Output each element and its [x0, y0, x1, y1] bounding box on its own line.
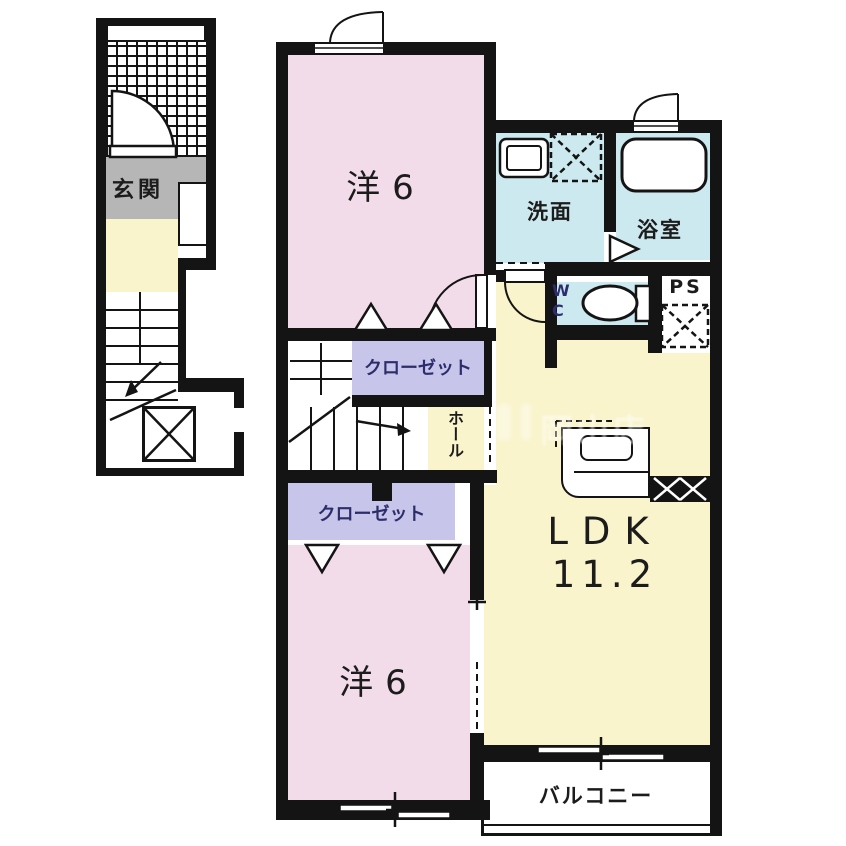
ldk-label-block: LDK 11.2 [515, 510, 695, 596]
wall-segment [96, 468, 244, 476]
wall-segment [372, 483, 392, 501]
window-top [313, 42, 385, 55]
watermark-text: 岡山店 [540, 404, 648, 452]
window-bathroom [632, 120, 680, 133]
wc-floor [557, 282, 648, 325]
wall-segment [178, 258, 186, 392]
void-x-box [142, 406, 196, 462]
wall-segment [545, 262, 722, 276]
wall-segment [648, 276, 662, 353]
genkan-label: 玄関 [112, 172, 164, 204]
bedroom-top-label: 洋6 [288, 160, 484, 209]
wc-label: W C [552, 281, 570, 321]
wall-segment [496, 270, 505, 282]
wall-segment [545, 325, 662, 340]
watermark-smudge [521, 404, 531, 440]
wall-segment [178, 378, 244, 392]
interior-stairs-arrowhead [397, 423, 411, 436]
wall-segment [96, 18, 216, 26]
wall-segment [470, 483, 484, 600]
balcony-rail-connector [481, 820, 484, 836]
ldk-size-label: 11.2 [515, 553, 695, 596]
ldk-label: LDK [515, 510, 695, 553]
balcony-outer-rail [482, 833, 716, 836]
wall-segment [385, 42, 496, 55]
shoe-cabinet [178, 182, 208, 246]
porch-hatch-area [106, 42, 206, 157]
hall-label: ホール [442, 410, 466, 470]
balcony-label: バルコニー [482, 780, 710, 810]
ldk-floor [496, 340, 648, 353]
wall-segment [276, 328, 496, 341]
wall-segment [276, 42, 288, 820]
corridor-floor [496, 282, 545, 340]
floor-plan: 玄関 洋6 洗面 浴室 W C PS クローゼット クローゼット ホール LDK… [0, 0, 846, 846]
wall-segment [276, 42, 313, 55]
stairwell-floor [106, 292, 178, 410]
wc-label-w: W [552, 281, 570, 301]
wall-segment [470, 745, 722, 762]
wall-segment [484, 42, 496, 275]
wall-segment [276, 470, 497, 483]
wall-segment [234, 392, 244, 408]
wall-segment [484, 120, 632, 133]
wall-segment [484, 341, 492, 407]
closet-bottom-label: クローゼット [288, 500, 455, 526]
bathroom-label: 浴室 [610, 214, 710, 244]
wall-segment [206, 18, 216, 270]
watermark-smudge [497, 404, 511, 440]
entry-hall-floor [106, 219, 178, 292]
wall-segment [352, 395, 484, 407]
closet-top-label: クローゼット [352, 354, 484, 380]
wc-label-c: C [552, 301, 570, 321]
ps-label: PS [664, 276, 708, 298]
wall-segment [96, 18, 106, 476]
bedroom-bottom-label: 洋6 [288, 655, 470, 704]
wall-segment [545, 340, 557, 368]
wall-segment [276, 800, 490, 820]
wall-segment [710, 120, 722, 836]
washroom-label: 洗面 [496, 196, 604, 226]
